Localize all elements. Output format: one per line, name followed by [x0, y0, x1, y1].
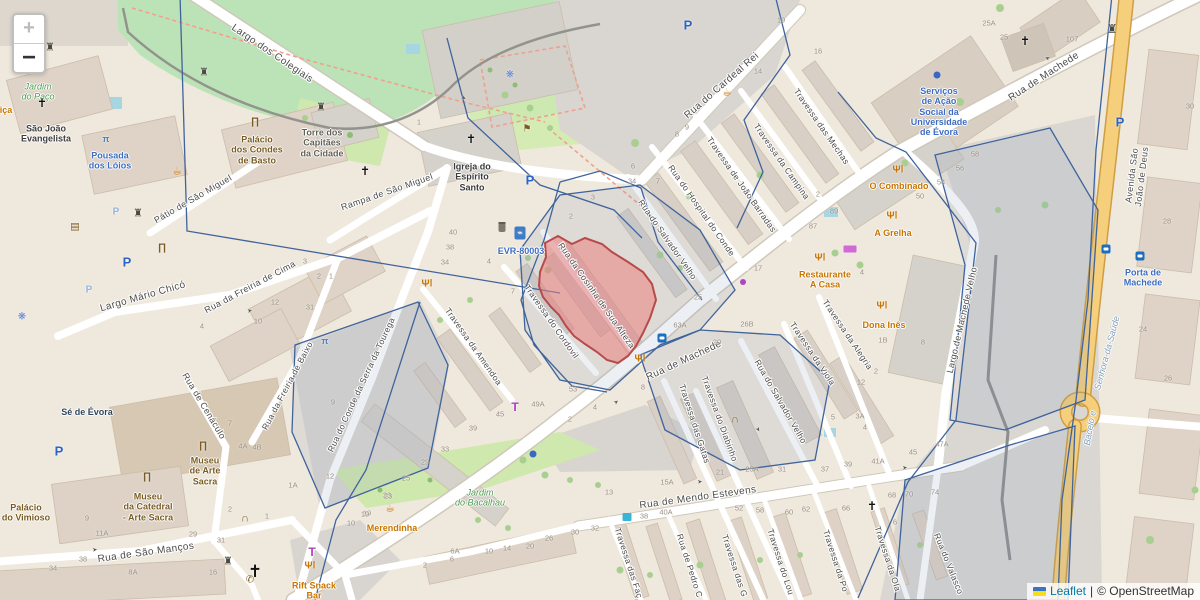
- attribution-bar: Leaflet | © OpenStreetMap: [1027, 583, 1200, 600]
- attribution-separator: |: [1090, 584, 1093, 598]
- osm-copyright[interactable]: © OpenStreetMap: [1097, 584, 1194, 598]
- map-canvas: [0, 0, 1200, 600]
- leaflet-map[interactable]: Largo dos ColegiaisRua do Cardeal ReiRua…: [0, 0, 1200, 600]
- zoom-out-button[interactable]: −: [14, 44, 44, 72]
- zoom-control: + −: [12, 13, 46, 74]
- leaflet-link[interactable]: Leaflet: [1050, 584, 1086, 598]
- zoom-in-button[interactable]: +: [14, 15, 44, 44]
- ukraine-flag-icon: [1033, 587, 1046, 596]
